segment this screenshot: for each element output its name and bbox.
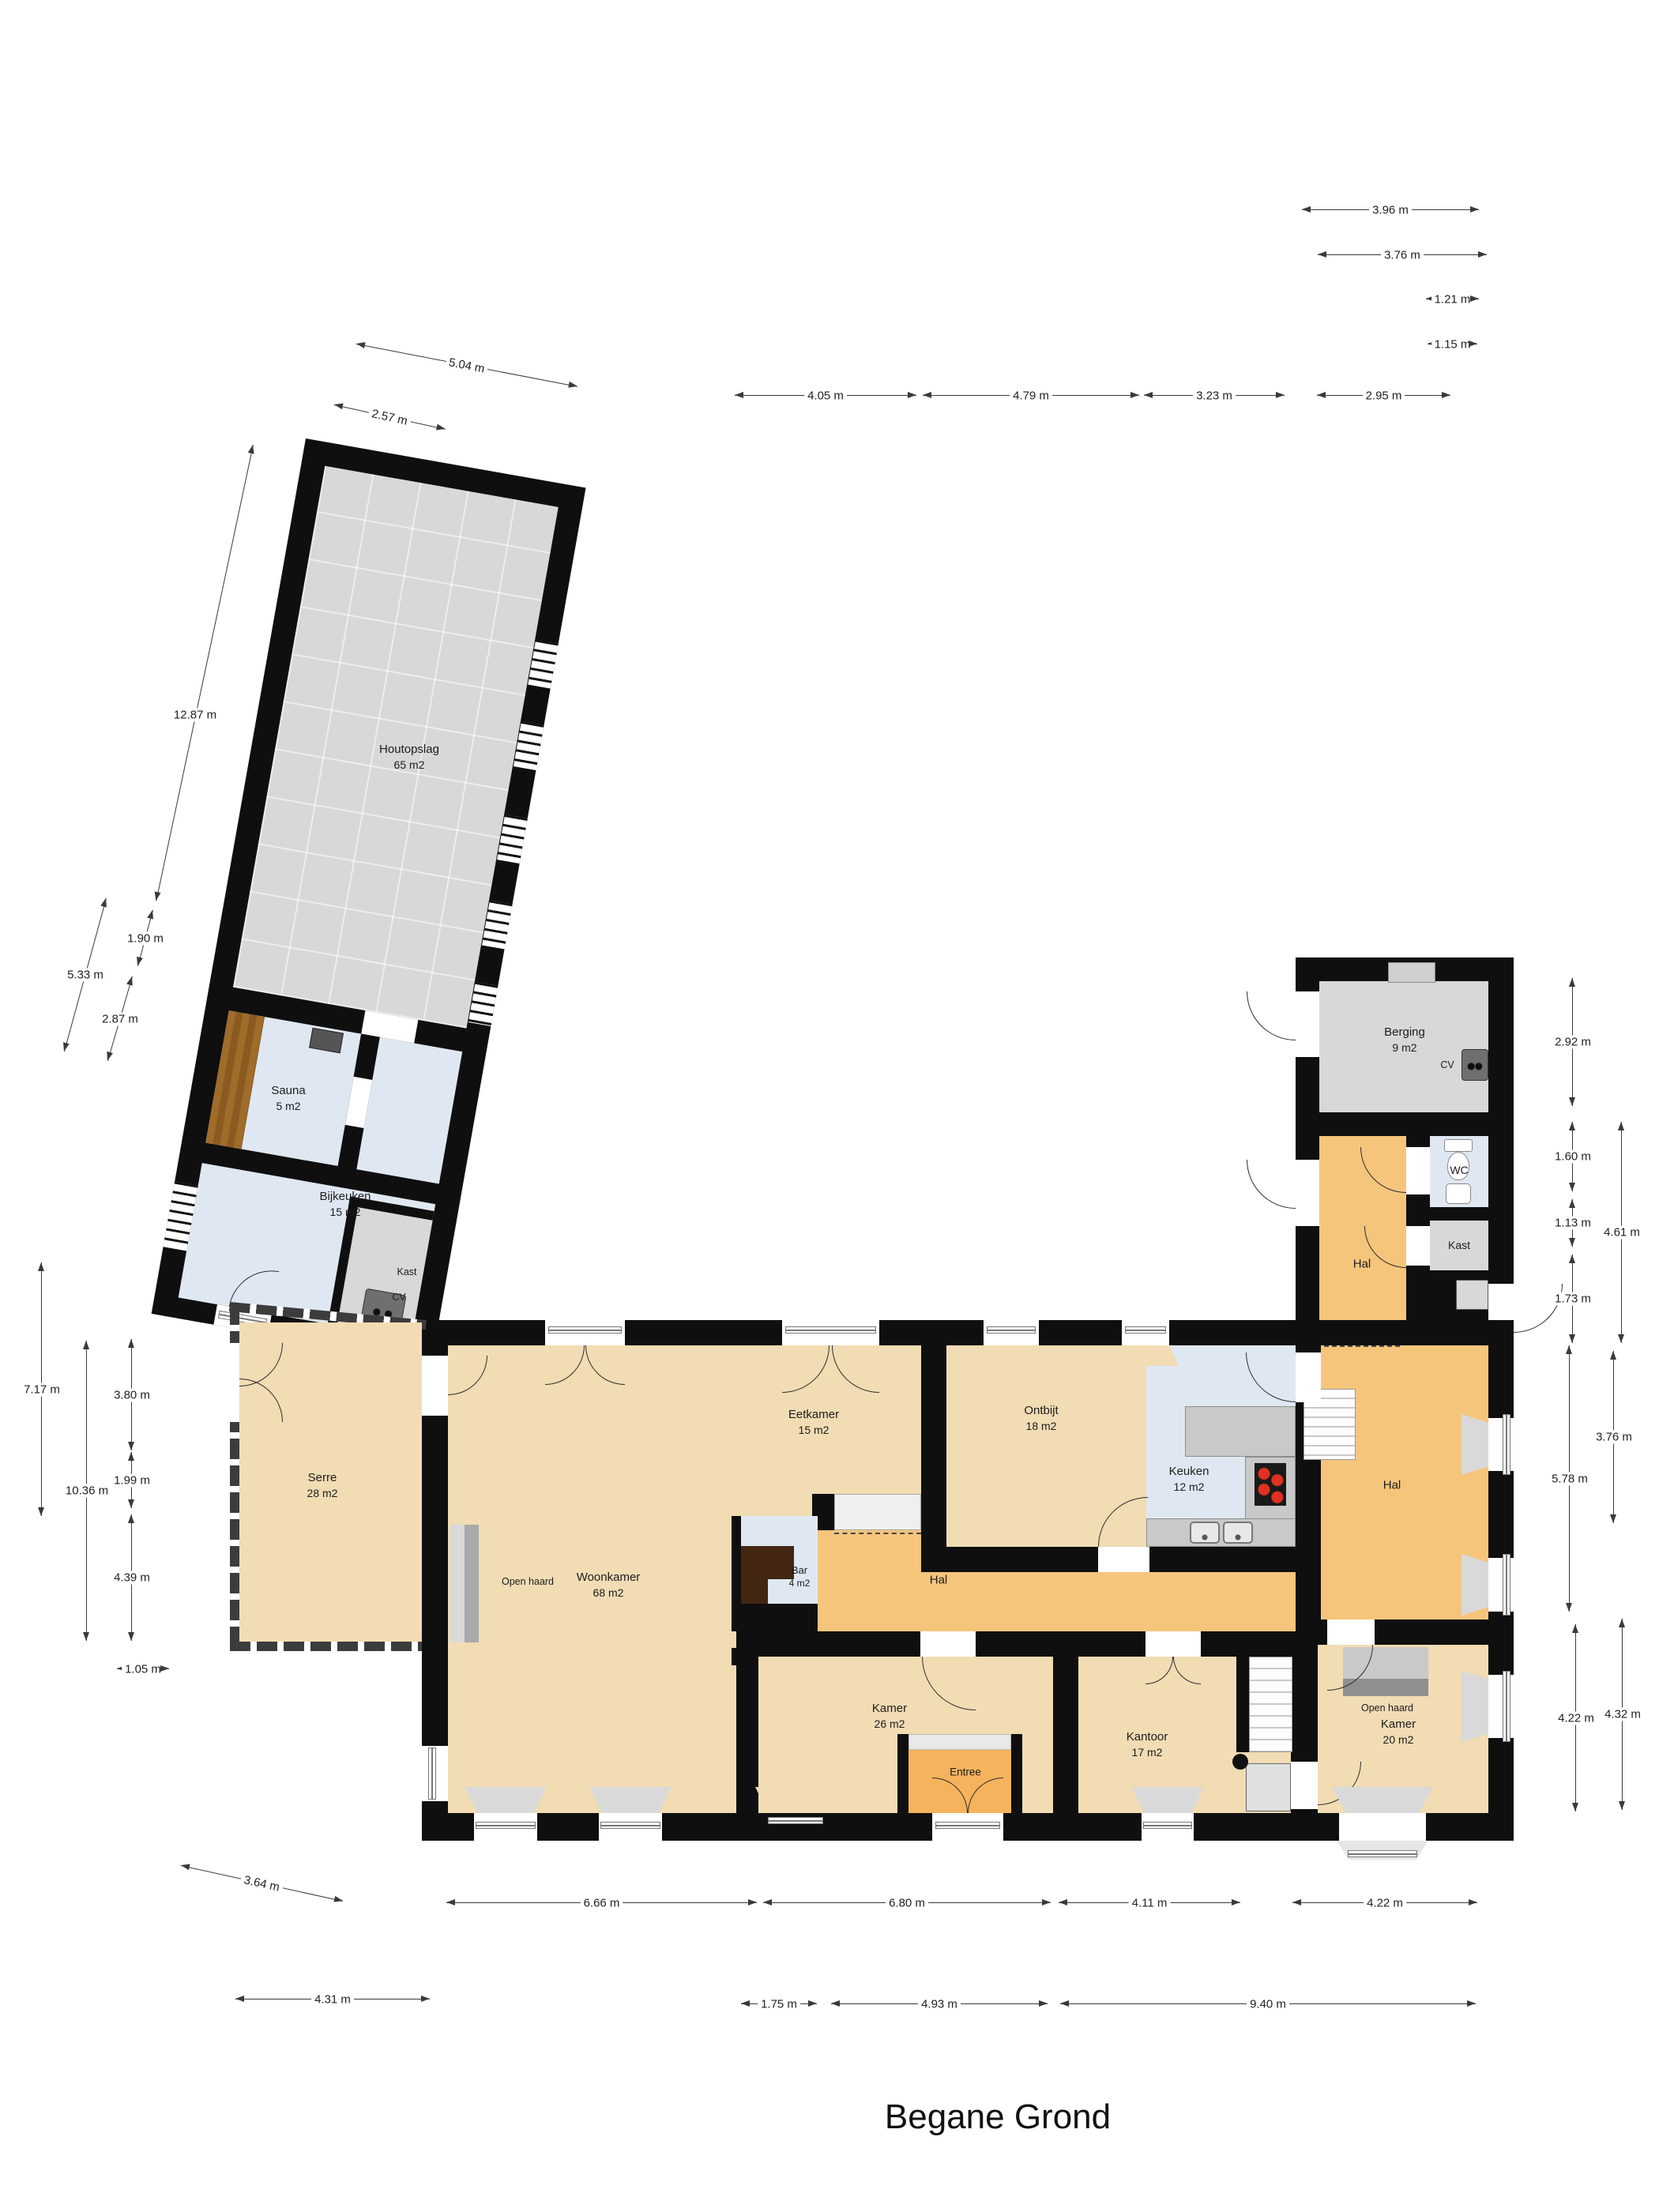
window-splay [589, 1787, 671, 1813]
column-icon [1232, 1754, 1248, 1770]
window-splay [1332, 1787, 1433, 1813]
window [476, 1822, 536, 1829]
room-label-ontbijt: Ontbijt18 m2 [1024, 1403, 1058, 1433]
french-door [785, 1326, 876, 1334]
wall [732, 1604, 818, 1631]
room-label-kantoor: Kantoor17 m2 [1127, 1729, 1168, 1759]
kitchen-counter [1185, 1406, 1296, 1457]
barn-group [152, 438, 586, 1363]
room-label-wc: WC [1450, 1164, 1468, 1176]
room-label-bar: Bar4 m2 [789, 1564, 811, 1589]
cv-boiler [1461, 1049, 1488, 1081]
dimension: 4.11 m [1059, 1902, 1240, 1903]
door-opening [1145, 1631, 1201, 1657]
door-threshold [935, 1822, 1000, 1829]
room-label-serre: Serre28 m2 [307, 1470, 338, 1500]
dimension: 10.36 m [86, 1341, 87, 1641]
window [1125, 1326, 1166, 1334]
dimension: 1.21 m [1426, 299, 1479, 299]
dimension: 6.80 m [763, 1902, 1051, 1903]
window-splay [1461, 1671, 1488, 1742]
toilet-icon [1444, 1139, 1473, 1152]
door-opening [1406, 1226, 1430, 1266]
dimension-label: 5.33 m [64, 969, 107, 982]
serre-glass-wall [230, 1642, 422, 1651]
dimension: 1.73 m [1572, 1255, 1573, 1343]
door-opening [1098, 1547, 1149, 1572]
entree-canopy [908, 1734, 1011, 1750]
dimension: 2.95 m [1317, 395, 1450, 396]
dimension-label: 12.87 m [171, 709, 220, 722]
dimension: 5.04 m [356, 344, 577, 387]
dimension: 4.61 m [1621, 1122, 1622, 1343]
berging-hatch [1388, 962, 1435, 983]
dimension: 3.80 m [131, 1339, 132, 1450]
closet-nib [1456, 1280, 1488, 1310]
sink-icon [1190, 1522, 1220, 1544]
dimension: 4.31 m [235, 1999, 430, 1999]
dimension: 1.99 m [131, 1452, 132, 1508]
sink-icon [1446, 1183, 1471, 1204]
fireplace [450, 1525, 465, 1642]
bay-window [1339, 1813, 1426, 1841]
window-splay [465, 1787, 547, 1813]
dimension: 9.40 m [1060, 2003, 1476, 2004]
fireplace [465, 1525, 479, 1642]
window [1348, 1850, 1417, 1857]
kitchen-counter [1146, 1518, 1296, 1547]
dimension: 1.05 m [117, 1668, 169, 1669]
dimension: 5.78 m [1569, 1345, 1570, 1612]
door-arc [1247, 1160, 1296, 1209]
window [1503, 1414, 1510, 1475]
dimension: 2.92 m [1572, 978, 1573, 1106]
counter-edge [834, 1533, 921, 1534]
door-opening [230, 1343, 239, 1422]
door-opening [422, 1356, 448, 1416]
room-hal-mid [921, 1572, 1296, 1631]
dimension: 1.13 m [1572, 1199, 1573, 1247]
wall [1291, 1645, 1318, 1762]
window-splay [755, 1787, 835, 1813]
page-title: Begane Grond [885, 2097, 1111, 2137]
room-label-cv-wing: CV [1440, 1059, 1454, 1070]
room-label-openhaard2: Open haard [1361, 1702, 1413, 1714]
door-opening [1327, 1619, 1375, 1645]
wall [736, 1657, 758, 1813]
dimension: 4.39 m [131, 1514, 132, 1641]
french-door [548, 1326, 622, 1334]
dimension: 2.57 m [334, 404, 446, 430]
door-opening [1296, 991, 1319, 1057]
room-label-eetkamer: Eetkamer15 m2 [788, 1407, 839, 1437]
dimension: 6.66 m [446, 1902, 757, 1903]
dimension: 4.22 m [1575, 1624, 1576, 1811]
dimension: 3.76 m [1613, 1351, 1614, 1523]
window [768, 1817, 823, 1824]
window [1143, 1822, 1192, 1829]
room-label-entree: Entree [950, 1766, 981, 1778]
dimension-label: 2.87 m [99, 1013, 141, 1026]
wall [736, 1631, 1296, 1657]
room-label-bijkeuken: Bijkeuken15 m2 [319, 1189, 371, 1219]
room-label-kast-barn: Kast [397, 1266, 416, 1277]
wall [1011, 1734, 1022, 1813]
wall [1296, 1619, 1488, 1645]
dimension: 3.64 m [181, 1865, 343, 1902]
room-label-hal-wing: Hal [1353, 1256, 1371, 1272]
window-splay [1461, 1554, 1488, 1616]
cooktop-icon [1255, 1463, 1286, 1506]
dimension: 4.93 m [831, 2003, 1048, 2004]
room-woonkamer [448, 1631, 736, 1813]
counter [834, 1494, 921, 1530]
window [1503, 1554, 1510, 1616]
door-opening [1291, 1762, 1318, 1809]
room-label-woonkamer: Woonkamer68 m2 [577, 1570, 641, 1600]
dimension: 4.22 m [1292, 1902, 1477, 1903]
fireplace [1343, 1679, 1428, 1696]
door-opening [1296, 1160, 1319, 1226]
room-label-kast-wing: Kast [1448, 1239, 1470, 1251]
wall [1236, 1657, 1249, 1752]
dimension-label: 1.90 m [124, 932, 167, 946]
room-hal-mid [818, 1530, 921, 1631]
window-splay [1112, 1345, 1179, 1366]
door-arc [1514, 1284, 1563, 1333]
door-opening [920, 1631, 976, 1657]
room-label-hal-right: Hal [1383, 1477, 1401, 1493]
floorplan-canvas: Houtopslag65 m2 Sauna5 m2 Bijkeuken15 m2… [0, 0, 1659, 2212]
column-icon [732, 1648, 744, 1665]
dimension: 3.76 m [1318, 254, 1487, 255]
room-label-keuken: Keuken12 m2 [1169, 1464, 1209, 1494]
wall [732, 1516, 741, 1604]
dimension: 7.17 m [41, 1262, 42, 1516]
wall [921, 1345, 946, 1547]
window [428, 1747, 436, 1800]
window [1503, 1671, 1510, 1742]
dimension: 3.96 m [1302, 209, 1479, 210]
window-splay [1461, 1414, 1488, 1475]
dimension: 4.05 m [735, 395, 916, 396]
door-arc [1247, 991, 1296, 1040]
room-label-kamer26: Kamer26 m2 [872, 1701, 907, 1731]
dimension: 1.60 m [1572, 1122, 1573, 1191]
dimension: 4.32 m [1622, 1619, 1623, 1810]
room-label-sauna: Sauna5 m2 [271, 1083, 305, 1113]
closet-understairs [1246, 1763, 1291, 1811]
staircase [1249, 1657, 1292, 1752]
wall [897, 1734, 908, 1813]
wall [1053, 1657, 1078, 1813]
window-splay [976, 1345, 1047, 1366]
window-splay [1132, 1787, 1203, 1813]
window [600, 1822, 660, 1829]
junction-line [1324, 1345, 1400, 1347]
room-label-kamer20: Kamer20 m2 [1381, 1717, 1416, 1747]
sink-icon [1223, 1522, 1253, 1544]
door-opening [1406, 1147, 1430, 1194]
room-label-cv-barn: CV [392, 1292, 405, 1303]
dimension: 4.79 m [923, 395, 1139, 396]
dimension: 3.23 m [1144, 395, 1285, 396]
window [987, 1326, 1036, 1334]
door-opening [1296, 1352, 1321, 1402]
dimension: 1.15 m [1428, 344, 1477, 344]
dimension: 1.75 m [741, 2003, 817, 2004]
room-label-houtopslag: Houtopslag65 m2 [379, 742, 439, 772]
room-label-openhaard1: Open haard [502, 1576, 554, 1587]
room-label-hal-mid: Hal [930, 1572, 948, 1588]
room-label-berging: Berging9 m2 [1384, 1025, 1425, 1055]
